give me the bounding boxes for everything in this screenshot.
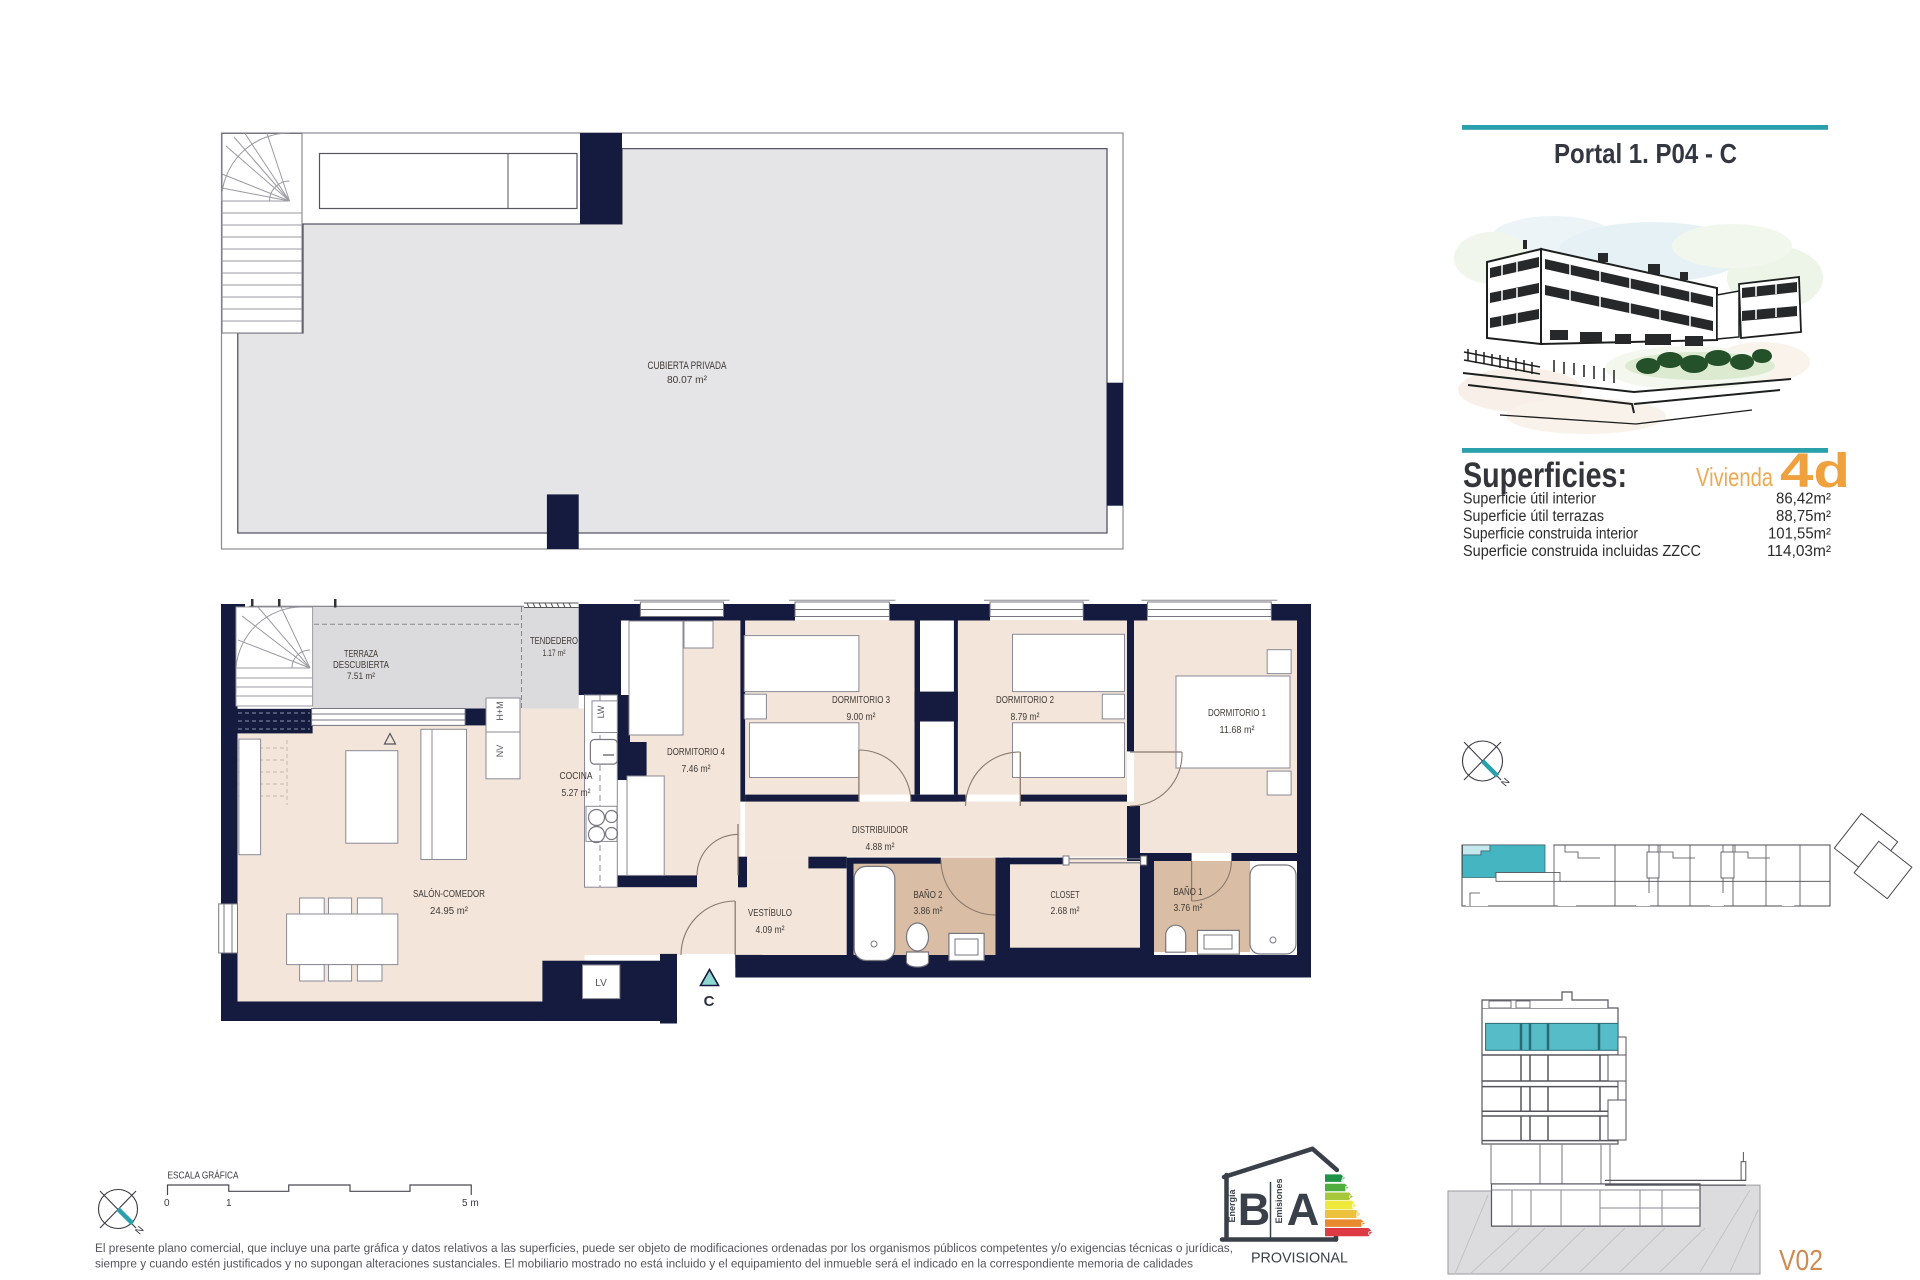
svg-text:H+M: H+M [495,701,505,720]
svg-text:2.68 m²: 2.68 m² [1051,906,1081,917]
svg-text:B: B [1238,1184,1271,1235]
svg-text:80.07 m²: 80.07 m² [667,374,707,386]
svg-text:86,42m²: 86,42m² [1776,491,1831,508]
svg-text:1: 1 [226,1198,232,1209]
svg-text:NV: NV [495,745,505,758]
svg-text:CUBIERTA PRIVADA: CUBIERTA PRIVADA [648,360,727,372]
svg-text:LW: LW [596,705,606,718]
svg-text:5.27 m²: 5.27 m² [562,788,592,799]
svg-text:Superficie construida interior: Superficie construida interior [1463,526,1638,543]
svg-text:PROVISIONAL: PROVISIONAL [1251,1251,1348,1267]
svg-text:101,55m²: 101,55m² [1768,526,1831,543]
svg-text:8.79 m²: 8.79 m² [1011,712,1041,723]
svg-text:11.68 m²: 11.68 m² [1220,725,1256,736]
svg-text:SALÓN-COMEDOR: SALÓN-COMEDOR [413,887,485,900]
svg-text:G: G [1368,1231,1373,1237]
svg-text:C: C [704,993,715,1010]
svg-text:Superficies:: Superficies: [1463,456,1627,495]
svg-text:1.17 m²: 1.17 m² [543,648,566,659]
svg-text:BAÑO 2: BAÑO 2 [914,888,943,901]
svg-text:V02: V02 [1779,1245,1823,1277]
svg-text:E: E [1356,1213,1360,1219]
svg-text:D: D [1352,1204,1357,1210]
svg-text:BAÑO 1: BAÑO 1 [1174,885,1203,898]
svg-text:DESCUBIERTA: DESCUBIERTA [333,660,389,671]
svg-text:DORMITORIO 1: DORMITORIO 1 [1208,707,1266,719]
svg-text:4.09 m²: 4.09 m² [756,925,786,936]
svg-text:4.88 m²: 4.88 m² [866,842,896,853]
svg-text:A: A [1287,1184,1320,1235]
svg-text:Superficie útil terrazas: Superficie útil terrazas [1463,508,1604,525]
svg-text:DISTRIBUIDOR: DISTRIBUIDOR [852,824,908,836]
svg-text:3.86 m²: 3.86 m² [914,906,944,917]
svg-text:DORMITORIO 4: DORMITORIO 4 [667,746,725,758]
svg-text:C: C [1349,1195,1354,1201]
svg-text:7.51 m²: 7.51 m² [347,671,375,682]
svg-text:LV: LV [595,978,607,989]
svg-text:Vivienda: Vivienda [1696,462,1773,492]
svg-text:Energía: Energía [1227,1189,1237,1223]
svg-text:COCINA: COCINA [560,770,593,782]
svg-text:114,03m²: 114,03m² [1767,543,1831,560]
svg-text:Superficie útil interior: Superficie útil interior [1463,491,1596,508]
svg-text:9.00 m²: 9.00 m² [847,712,877,723]
svg-text:0: 0 [164,1198,170,1209]
svg-text:DORMITORIO 2: DORMITORIO 2 [996,694,1054,706]
svg-text:7.46 m²: 7.46 m² [682,764,712,775]
svg-text:Emisiones: Emisiones [1274,1178,1284,1223]
svg-text:3.76 m²: 3.76 m² [1174,903,1204,914]
svg-text:El presente plano comercial, q: El presente plano comercial, que incluye… [95,1241,1233,1255]
svg-text:A: A [1341,1177,1346,1183]
svg-text:TERRAZA: TERRAZA [344,649,378,660]
svg-text:F: F [1361,1222,1365,1228]
svg-text:DORMITORIO 3: DORMITORIO 3 [832,694,890,706]
svg-text:Portal 1. P04 - C: Portal 1. P04 - C [1554,138,1737,169]
svg-text:B: B [1345,1187,1350,1193]
svg-text:CLOSET: CLOSET [1051,889,1080,901]
svg-text:5 m: 5 m [462,1198,479,1209]
svg-text:VESTÍBULO: VESTÍBULO [748,906,792,919]
svg-text:Superficie construida incluida: Superficie construida incluidas ZZCC [1463,543,1701,560]
svg-text:88,75m²: 88,75m² [1776,508,1831,525]
svg-text:siempre y cuando estén justifi: siempre y cuando estén justificados y no… [95,1257,1193,1271]
svg-text:ESCALA GRÁFICA: ESCALA GRÁFICA [168,1169,239,1182]
svg-text:24.95 m²: 24.95 m² [430,906,469,917]
svg-text:TENDEDERO: TENDEDERO [530,636,578,647]
